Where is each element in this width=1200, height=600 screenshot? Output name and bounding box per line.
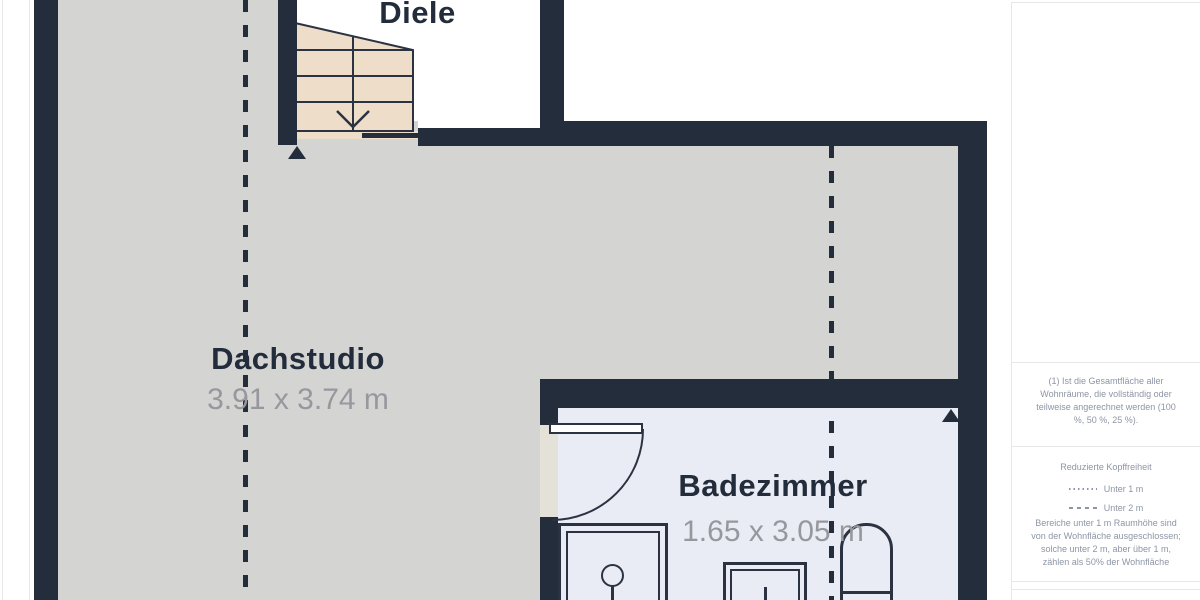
shower-drain-stem [611, 586, 614, 600]
wall-badezimmer-top [540, 379, 958, 408]
room-label-dachstudio: Dachstudio [148, 341, 448, 377]
page-edge-line [29, 0, 30, 600]
wall-badezimmer-left-lower [540, 517, 558, 600]
legend-line-dotted-icon [1069, 488, 1097, 490]
shower-drain-icon [601, 564, 624, 587]
room-dims-dachstudio: 3.91 x 3.74 m [148, 383, 448, 417]
staircase [293, 18, 423, 143]
legend-line-dashed-icon [1069, 507, 1097, 509]
legend-label-under-2m: Unter 2 m [1104, 501, 1144, 515]
staircase-threshold [362, 133, 418, 138]
legend-row-under-1m: Unter 1 m [1031, 482, 1181, 496]
sidebar-divider [1012, 446, 1200, 447]
washbasin-drain-line [764, 587, 767, 600]
door-marker-triangle-icon [942, 409, 960, 422]
room-label-diele: Diele [340, 0, 495, 31]
headroom-under-2m-line-left [243, 0, 248, 600]
sidebar-divider [1012, 362, 1200, 363]
sidebar-divider [1012, 589, 1200, 590]
door-marker-triangle-icon [288, 146, 306, 159]
wall-right-exterior [958, 121, 987, 600]
wall-left-exterior [34, 0, 58, 600]
sidebar-note-total-area: (1) Ist die Gesamtfläche aller Wohnräume… [1031, 375, 1181, 427]
room-dims-badezimmer: 1.65 x 3.05 m [623, 515, 923, 549]
legend-row-under-2m: Unter 2 m [1031, 501, 1181, 515]
sidebar-divider [1012, 581, 1200, 582]
wall-diele-bottom [418, 128, 542, 146]
headroom-note: Bereiche unter 1 m Raumhöhe sind von der… [1031, 517, 1181, 569]
page-edge-line [2, 0, 3, 600]
toilet-seat-line [843, 591, 890, 594]
diele-floor [418, 121, 542, 128]
wall-stair-enclosure [278, 0, 297, 145]
legend-label-under-1m: Unter 1 m [1104, 482, 1144, 496]
headroom-title: Reduzierte Kopffreiheit [1031, 461, 1181, 474]
room-label-badezimmer: Badezimmer [623, 468, 923, 504]
wall-interior-top [540, 121, 987, 146]
wall-diele-right [540, 0, 564, 128]
floorplan-page: Diele Dachstudio 3.91 x 3.74 m Badezimme… [0, 0, 1200, 600]
sidebar: (1) Ist die Gesamtfläche aller Wohnräume… [1011, 2, 1200, 600]
